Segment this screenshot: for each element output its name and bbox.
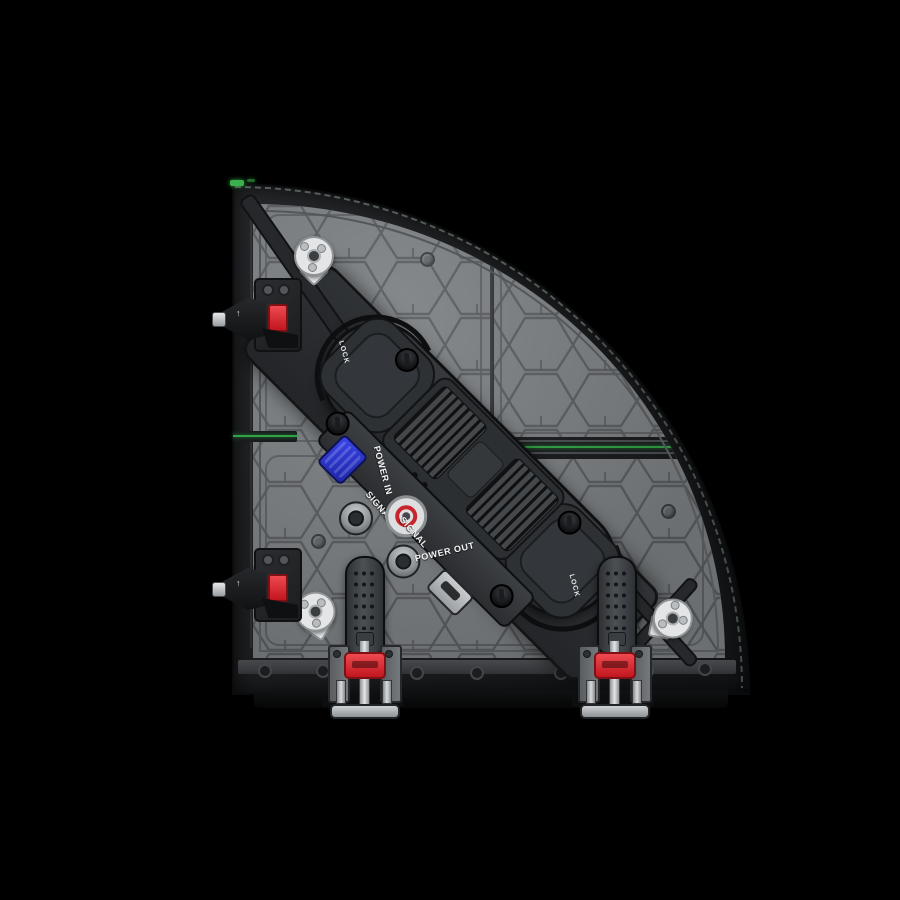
product-photo-stage: LOCK LOCK POWER IN SIGNAL SIGNAL POWER O…	[0, 0, 900, 900]
interconnect-pin	[212, 312, 226, 327]
green-led-corner-glint	[247, 179, 255, 182]
interconnect-pin	[212, 582, 226, 597]
clamp-t-bar	[580, 704, 650, 719]
green-led-corner-glint	[230, 180, 244, 186]
clamp-t-bar	[330, 704, 400, 719]
